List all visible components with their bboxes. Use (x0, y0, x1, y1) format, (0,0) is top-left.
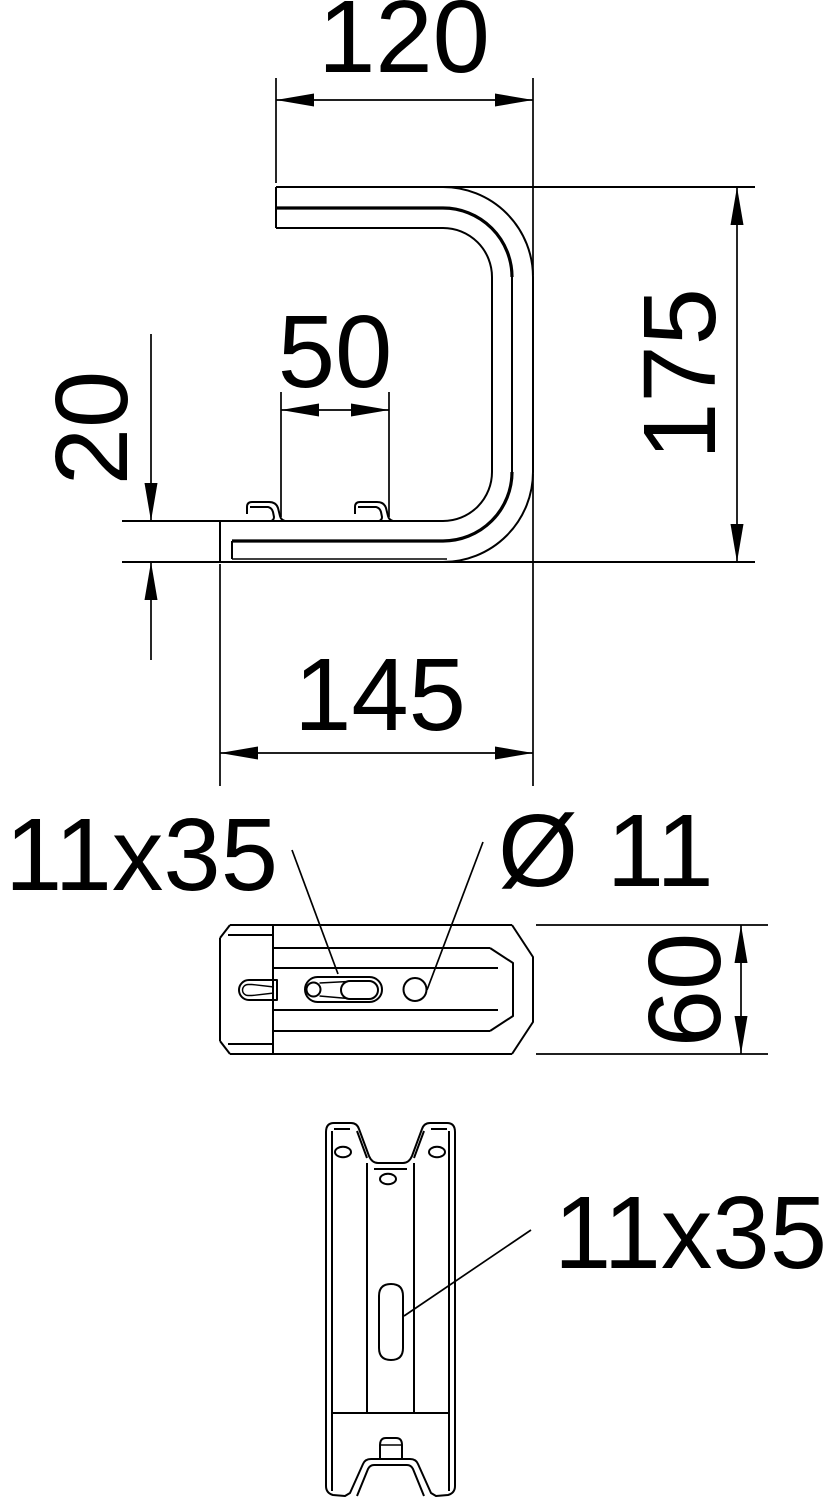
technical-drawing-canvas: 120 175 50 20 145 (0, 0, 830, 1500)
dim-20-label: 20 (34, 371, 149, 486)
dim-50-label: 50 (278, 294, 393, 409)
dim-60-label: 60 (627, 933, 742, 1048)
front-slot-size-label: 11x35 (554, 1175, 827, 1290)
dim-175-label: 175 (622, 288, 737, 460)
front-view-holes (335, 1147, 445, 1184)
side-view: 120 175 50 20 145 (34, 0, 755, 786)
side-view-hooks (247, 502, 393, 521)
dim-145-label: 145 (294, 637, 466, 752)
dim-120: 120 (276, 0, 533, 275)
slot-size-label: 11x35 (5, 797, 278, 912)
front-view-outline (326, 1123, 455, 1496)
dim-60: 60 (536, 925, 768, 1054)
top-view-left-slot (239, 980, 277, 1000)
dim-20: 20 (34, 334, 222, 660)
dim-50: 50 (278, 294, 393, 517)
technical-drawing-page: 120 175 50 20 145 (0, 0, 830, 1500)
front-view-slot (379, 1284, 403, 1360)
top-view-outline (220, 925, 533, 1054)
slot-leader-line (292, 850, 338, 974)
front-view: 11x35 (326, 1123, 827, 1496)
top-view-slot (305, 977, 382, 1002)
front-slot-leader-line (404, 1230, 531, 1316)
dim-175: 175 (622, 187, 744, 562)
top-view: 11x35 Ø 11 60 (5, 793, 768, 1054)
hole-diameter-label: Ø 11 (498, 793, 714, 908)
top-view-hole (404, 978, 427, 1001)
dim-120-label: 120 (318, 0, 490, 94)
